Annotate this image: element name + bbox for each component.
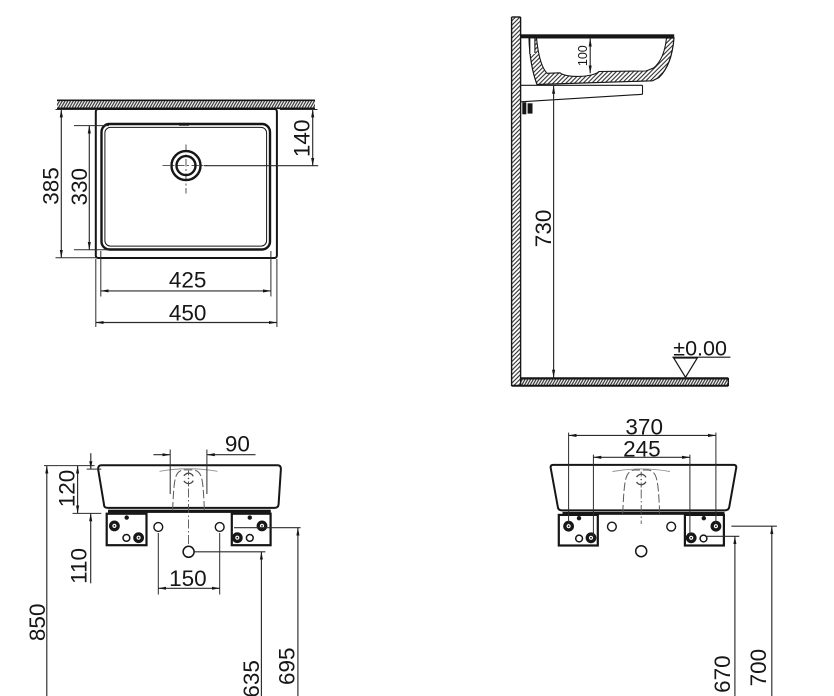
svg-text:635: 635 [239,660,264,696]
svg-text:90: 90 [225,431,250,456]
svg-text:700: 700 [746,649,771,687]
svg-text:385: 385 [39,167,64,205]
svg-text:670: 670 [710,655,735,693]
svg-text:140: 140 [290,120,315,158]
svg-text:850: 850 [25,604,50,642]
svg-text:730: 730 [531,210,556,248]
svg-text:330: 330 [67,168,92,206]
svg-text:450: 450 [169,301,207,326]
svg-text:245: 245 [623,437,661,462]
svg-text:120: 120 [55,470,80,508]
svg-text:695: 695 [275,647,300,685]
svg-text:110: 110 [67,548,92,584]
svg-text:425: 425 [169,268,207,293]
svg-text:150: 150 [169,566,207,591]
svg-text:100: 100 [576,45,590,66]
